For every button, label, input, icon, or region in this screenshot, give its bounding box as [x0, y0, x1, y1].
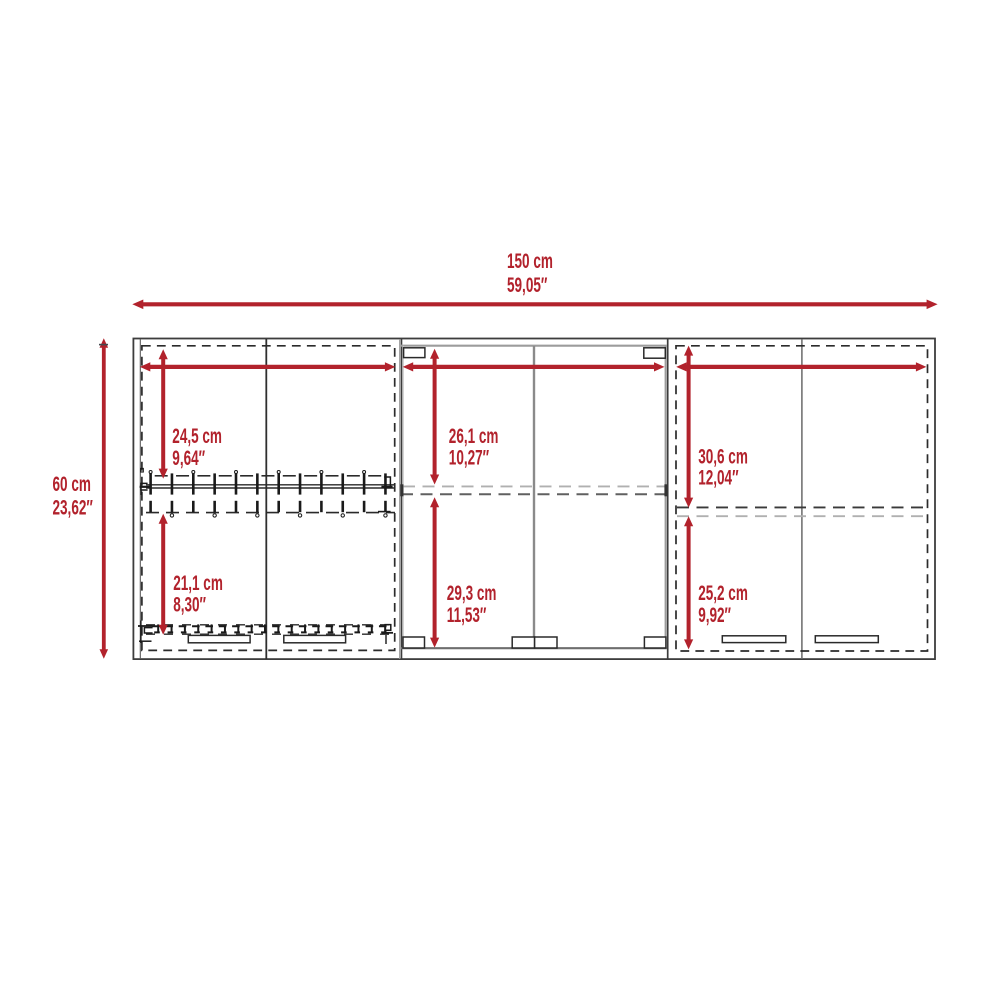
svg-text:150 cm: 150 cm	[507, 249, 553, 273]
svg-text:8,30″: 8,30″	[173, 592, 206, 616]
svg-text:25,2 cm: 25,2 cm	[698, 581, 748, 605]
svg-text:10,27″: 10,27″	[449, 445, 490, 469]
svg-text:11,53″: 11,53″	[447, 603, 487, 627]
svg-text:9,64″: 9,64″	[172, 446, 205, 470]
svg-text:29,3 cm: 29,3 cm	[447, 581, 497, 605]
svg-text:23,62″: 23,62″	[53, 495, 94, 519]
svg-text:21,1 cm: 21,1 cm	[173, 571, 223, 595]
svg-text:26,1 cm: 26,1 cm	[449, 424, 499, 448]
svg-text:24,5 cm: 24,5 cm	[172, 424, 222, 448]
svg-text:12,04″: 12,04″	[698, 465, 739, 489]
svg-text:60 cm: 60 cm	[53, 472, 91, 496]
svg-text:9,92″: 9,92″	[698, 603, 731, 627]
svg-text:59,05″: 59,05″	[507, 273, 548, 297]
